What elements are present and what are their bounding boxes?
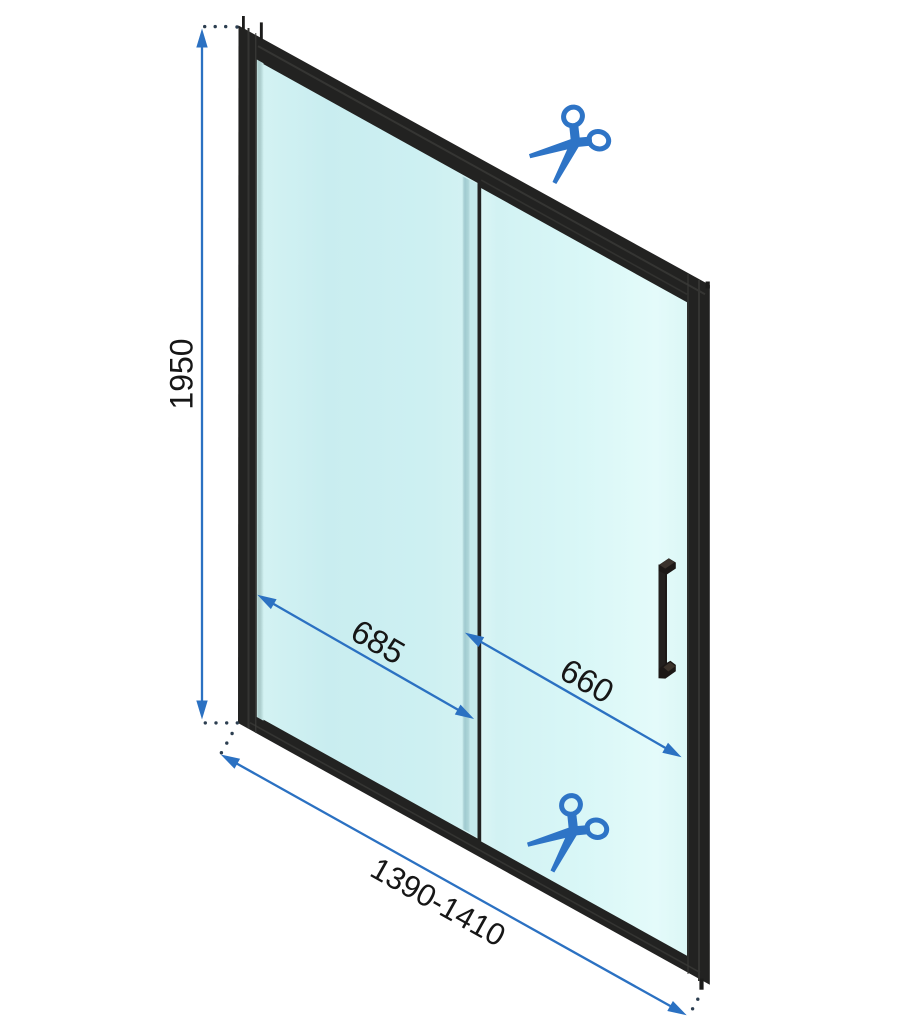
svg-text:1950: 1950 [163,338,199,409]
svg-text:1390-1410: 1390-1410 [365,851,511,954]
